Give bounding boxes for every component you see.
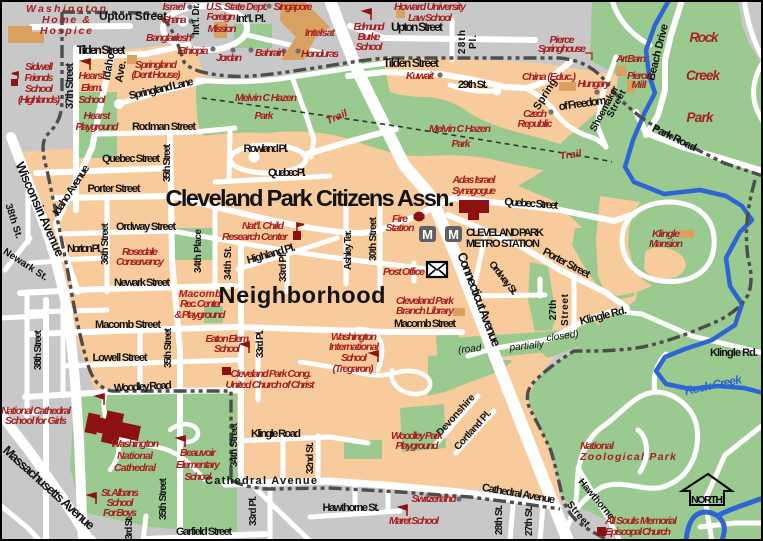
svg-text:Int’l. Pl.: Int’l. Pl. [236, 13, 266, 25]
svg-text:Macomb Street: Macomb Street [95, 319, 161, 331]
svg-text:Rowland Pl.: Rowland Pl. [244, 143, 289, 155]
svg-text:United Church of Christ: United Church of Christ [226, 379, 316, 391]
svg-text:33rd Pl.: 33rd Pl. [255, 330, 266, 358]
svg-text:Newark Street: Newark Street [114, 277, 170, 289]
svg-text:34th Place: 34th Place [193, 229, 204, 273]
svg-text:Lowell Street: Lowell Street [93, 352, 148, 364]
svg-text:Kuwait: Kuwait [406, 70, 435, 82]
svg-text:33rd Pl.: 33rd Pl. [278, 252, 289, 282]
svg-text:33rd St.: 33rd St. [124, 516, 135, 541]
svg-text:Playground: Playground [76, 121, 120, 133]
svg-text:Park: Park [452, 138, 472, 150]
svg-text:Cleveland Park Citizens Assn.: Cleveland Park Citizens Assn. [166, 185, 455, 211]
svg-text:Zoological Park: Zoological Park [579, 451, 677, 463]
svg-text:Int’l. Dr.: Int’l. Dr. [191, 3, 202, 35]
svg-text:School: School [79, 94, 107, 106]
svg-text:School: School [185, 471, 213, 483]
svg-text:27th St.: 27th St. [524, 506, 535, 536]
svg-text:Street: Street [560, 293, 571, 326]
svg-text:28th: 28th [457, 30, 468, 54]
svg-text:Cathedral Avenue: Cathedral Avenue [205, 475, 317, 487]
svg-text:27th: 27th [548, 300, 559, 321]
svg-text:35th Street: 35th Street [158, 477, 169, 520]
svg-text:Quebec Street: Quebec Street [102, 153, 160, 165]
svg-text:Springhouse: Springhouse [538, 43, 586, 55]
svg-text:Mansion: Mansion [649, 238, 683, 250]
svg-text:Switzerland: Switzerland [412, 493, 458, 505]
svg-text:M: M [422, 227, 433, 242]
svg-text:Washington: Washington [111, 438, 159, 450]
svg-text:34th St.: 34th St. [223, 246, 234, 280]
svg-text:Law School: Law School [408, 12, 453, 24]
svg-text:Jordan: Jordan [216, 52, 242, 64]
svg-text:Episcopal Church: Episcopal Church [605, 526, 671, 538]
svg-text:30th Street: 30th Street [368, 216, 379, 261]
svg-text:Rodman Street: Rodman Street [132, 121, 196, 133]
svg-text:Klingle Road: Klingle Road [251, 428, 301, 440]
svg-text:For Boys: For Boys [103, 507, 137, 519]
svg-text:37th Street: 37th Street [64, 63, 76, 109]
svg-text:METRO STATION: METRO STATION [466, 238, 540, 250]
svg-text:National: National [117, 450, 154, 462]
svg-text:Ashley Ter.: Ashley Ter. [343, 230, 354, 270]
svg-text:33rd Pl.: 33rd Pl. [248, 496, 259, 526]
svg-text:Mission: Mission [208, 23, 237, 35]
svg-text:Honduras: Honduras [301, 48, 339, 60]
svg-text:Norton Pl.: Norton Pl. [67, 243, 101, 255]
svg-text:Park: Park [255, 110, 275, 122]
svg-text:M: M [448, 227, 459, 242]
svg-text:Park: Park [687, 110, 715, 125]
svg-text:Beauvoir: Beauvoir [180, 447, 217, 459]
svg-text:Mill: Mill [632, 79, 648, 91]
svg-text:Playground: Playground [396, 440, 440, 452]
svg-text:Post Office: Post Office [383, 266, 425, 278]
svg-text:Hawthorne St.: Hawthorne St. [323, 502, 380, 514]
svg-text:Garfield Street: Garfield Street [176, 526, 232, 538]
svg-text:Quebec Pl.: Quebec Pl. [268, 167, 306, 179]
svg-text:34th Street: 34th Street [229, 422, 240, 467]
svg-text:(Tregaron): (Tregaron) [333, 363, 375, 375]
svg-text:Tilden Street: Tilden Street [77, 43, 126, 57]
svg-text:Station: Station [386, 222, 415, 234]
svg-text:Conservancy: Conservancy [116, 256, 165, 268]
svg-text:(Dent House): (Dent House) [132, 69, 182, 81]
svg-text:Elementary: Elementary [176, 459, 221, 471]
svg-text:Singapore: Singapore [274, 1, 313, 13]
svg-text:28th St.: 28th St. [494, 505, 505, 535]
svg-text:Synagogue: Synagogue [452, 185, 496, 197]
svg-text:Bahrain: Bahrain [255, 47, 285, 59]
svg-text:Branch Library: Branch Library [396, 305, 455, 317]
svg-text:Hearst: Hearst [79, 70, 107, 82]
svg-text:35th Street: 35th Street [162, 143, 173, 182]
svg-text:Art Barn: Art Barn [615, 53, 646, 65]
svg-text:School: School [214, 343, 241, 355]
svg-text:Republic: Republic [518, 118, 553, 130]
svg-text:(Highlands): (Highlands) [18, 94, 61, 106]
svg-text:School for Girls: School for Girls [5, 415, 67, 427]
svg-text:Upton Street: Upton Street [99, 9, 167, 23]
svg-text:Tilden Street: Tilden Street [383, 56, 439, 70]
svg-text:Hungary: Hungary [578, 78, 612, 90]
svg-text:China (Educ.): China (Educ.) [522, 71, 577, 83]
svg-text:Israel: Israel [163, 1, 187, 13]
svg-text:Cathedral: Cathedral [114, 462, 157, 474]
svg-text:& Playground: & Playground [175, 309, 227, 321]
svg-text:Creek: Creek [686, 68, 721, 83]
svg-text:Ghana: Ghana [162, 14, 187, 26]
svg-text:NORTH: NORTH [691, 494, 723, 506]
svg-text:Macomb Street: Macomb Street [394, 318, 456, 330]
svg-text:Foreign: Foreign [207, 11, 236, 23]
svg-text:Neighborhood: Neighborhood [219, 282, 386, 308]
svg-text:Melvin C Hazen: Melvin C Hazen [235, 92, 297, 104]
svg-text:Intelsat: Intelsat [305, 27, 336, 39]
svg-text:Ordway Street: Ordway Street [116, 221, 176, 233]
svg-text:32nd St.: 32nd St. [305, 442, 316, 474]
svg-text:Melvin C Hazen: Melvin C Hazen [429, 123, 491, 135]
svg-text:36th Street: 36th Street [100, 222, 111, 265]
svg-text:Rock: Rock [690, 30, 720, 45]
svg-text:29th St.: 29th St. [458, 79, 488, 91]
svg-text:Elem.: Elem. [81, 82, 103, 94]
svg-text:Bangladesh: Bangladesh [146, 32, 192, 44]
svg-text:Porter Street: Porter Street [88, 183, 141, 195]
svg-text:38th Street: 38th Street [33, 329, 44, 370]
svg-text:Pl.: Pl. [468, 35, 479, 49]
svg-text:Maret School: Maret School [389, 515, 440, 527]
svg-text:35th Street: 35th Street [163, 327, 174, 368]
svg-text:Klingle Rd.: Klingle Rd. [710, 347, 758, 359]
svg-text:Ethiopia: Ethiopia [178, 45, 209, 57]
svg-text:Research Center: Research Center [222, 231, 289, 243]
svg-text:School: School [356, 41, 384, 53]
